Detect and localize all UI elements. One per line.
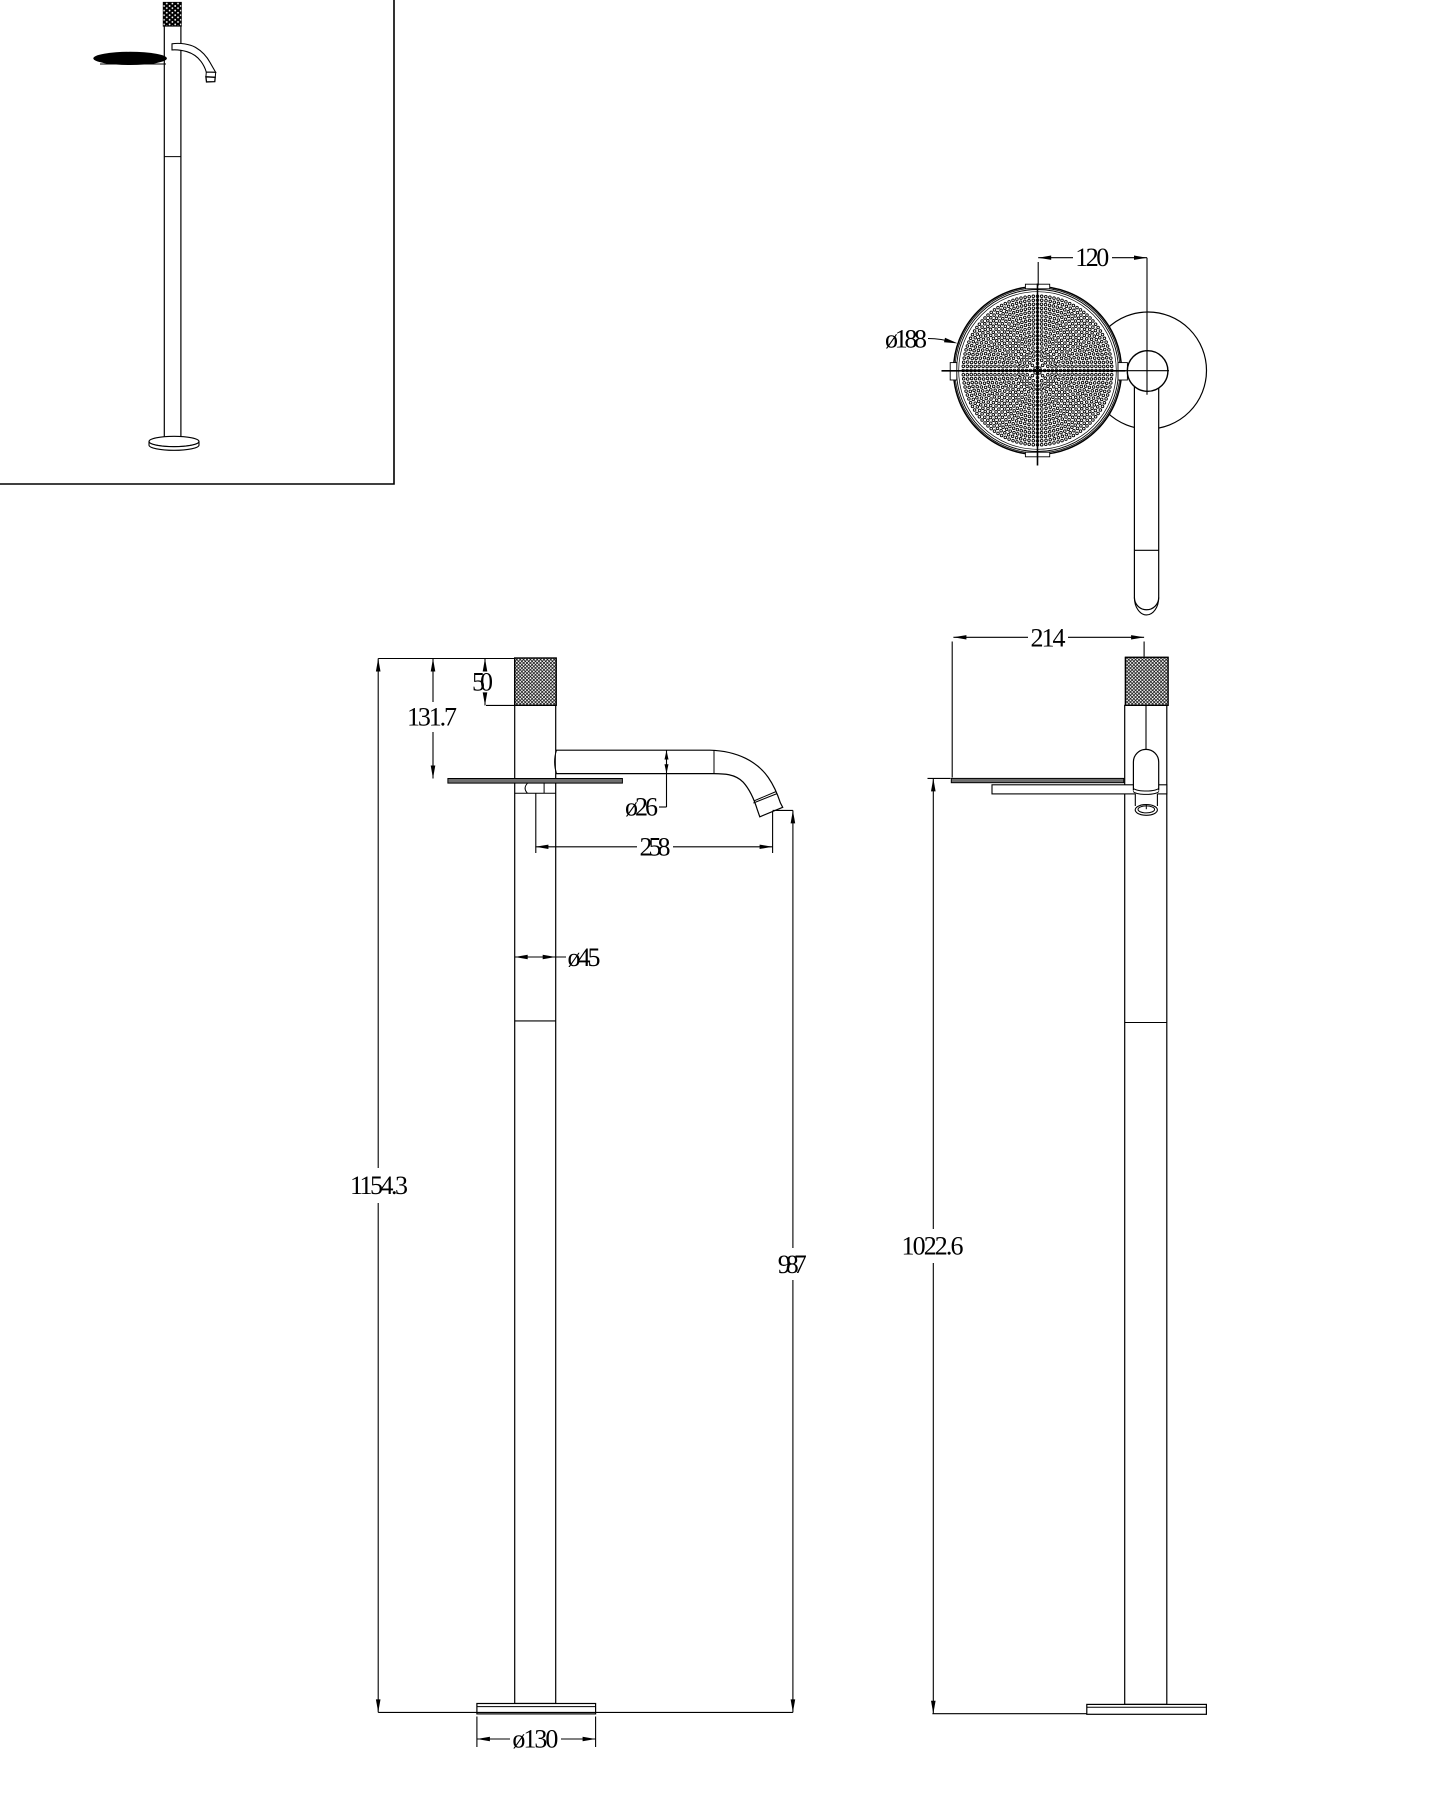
svg-text:1022.6: 1022.6 xyxy=(902,1232,964,1261)
svg-text:50: 50 xyxy=(472,668,493,697)
svg-text:214: 214 xyxy=(1031,624,1066,653)
svg-text:258: 258 xyxy=(640,833,671,862)
svg-text:1154.3: 1154.3 xyxy=(350,1171,408,1200)
svg-text:ø130: ø130 xyxy=(512,1725,558,1754)
svg-text:120: 120 xyxy=(1075,243,1109,272)
svg-text:ø45: ø45 xyxy=(568,943,601,972)
svg-text:987: 987 xyxy=(778,1250,807,1279)
svg-text:ø26: ø26 xyxy=(625,793,658,822)
svg-text:131.7: 131.7 xyxy=(407,703,457,732)
svg-text:ø188: ø188 xyxy=(885,325,927,354)
